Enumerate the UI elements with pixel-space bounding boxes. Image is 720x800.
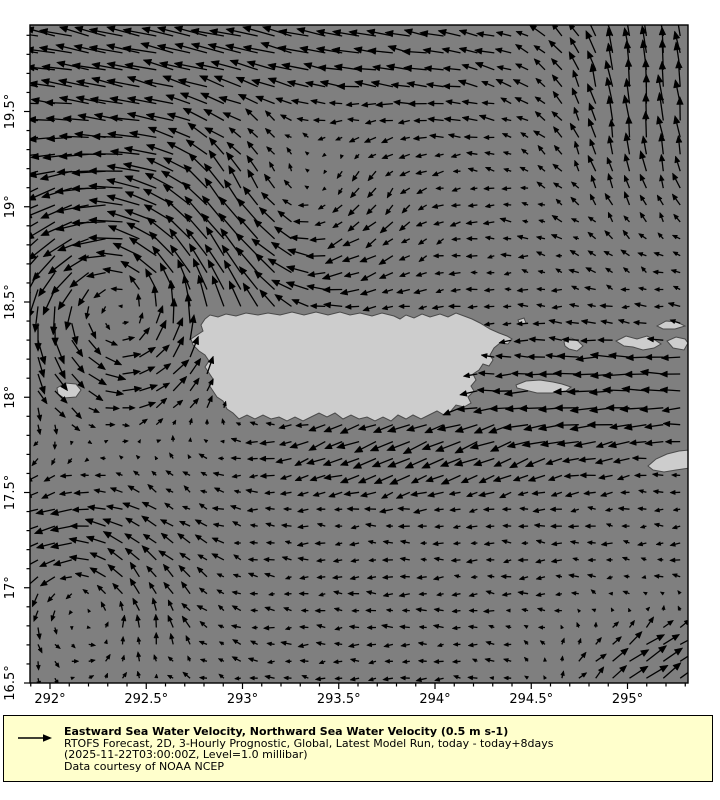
velocity-arrow [13,80,21,87]
velocity-arrow [20,527,28,533]
y-tick-label: 16.5° [3,665,18,700]
y-tick-label: 17° [3,576,18,599]
velocity-arrow [624,13,631,21]
legend-box: Eastward Sea Water Velocity, Northward S… [3,715,713,782]
velocity-arrow [11,47,19,54]
velocity-arrow [693,647,702,654]
velocity-arrow [10,231,19,238]
x-tick-label: 294° [419,692,450,707]
velocity-arrow [19,545,27,551]
x-tick-label: 295° [612,692,643,707]
velocity-arrow [16,273,24,281]
legend-title: Eastward Sea Water Velocity, Northward S… [64,726,554,738]
y-tick-label: 18.5° [3,284,18,319]
velocity-arrow [657,9,664,17]
velocity-arrow [692,664,700,671]
x-tick-label: 293.5° [317,692,361,707]
x-tick-label: 293° [227,692,258,707]
velocity-arrow [13,61,22,67]
velocity-arrow [23,583,31,590]
legend-credit: Data courtesy of NOAA NCEP [64,761,554,773]
y-tick-label: 19° [3,195,18,218]
velocity-arrow [18,509,26,515]
velocity-arrow [13,153,21,160]
x-tick-label: 292.5° [124,692,168,707]
velocity-arrow [640,9,647,17]
x-tick-label: 292° [34,692,65,707]
x-tick-label: 294.5° [509,692,553,707]
reference-arrow-icon [16,732,54,744]
y-tick-label: 17.5° [3,475,18,510]
velocity-arrow [19,564,27,570]
y-tick-label: 18° [3,386,18,409]
velocity-arrow [674,13,681,21]
velocity-arrow [689,636,697,642]
y-tick-label: 19.5° [3,94,18,129]
velocity-arrow [604,16,610,24]
figure: 292°292.5°293°293.5°294°294.5°295°16.5°1… [0,0,720,800]
velocity-arrow [10,30,18,37]
velocity-arrow [586,16,592,25]
velocity-map: 292°292.5°293°293.5°294°294.5°295°16.5°1… [0,0,720,712]
velocity-arrow [15,173,24,179]
velocity-arrow [13,136,21,143]
velocity-arrow [13,254,21,262]
island-puerto-rico [191,312,512,421]
legend-text: Eastward Sea Water Velocity, Northward S… [64,716,554,772]
